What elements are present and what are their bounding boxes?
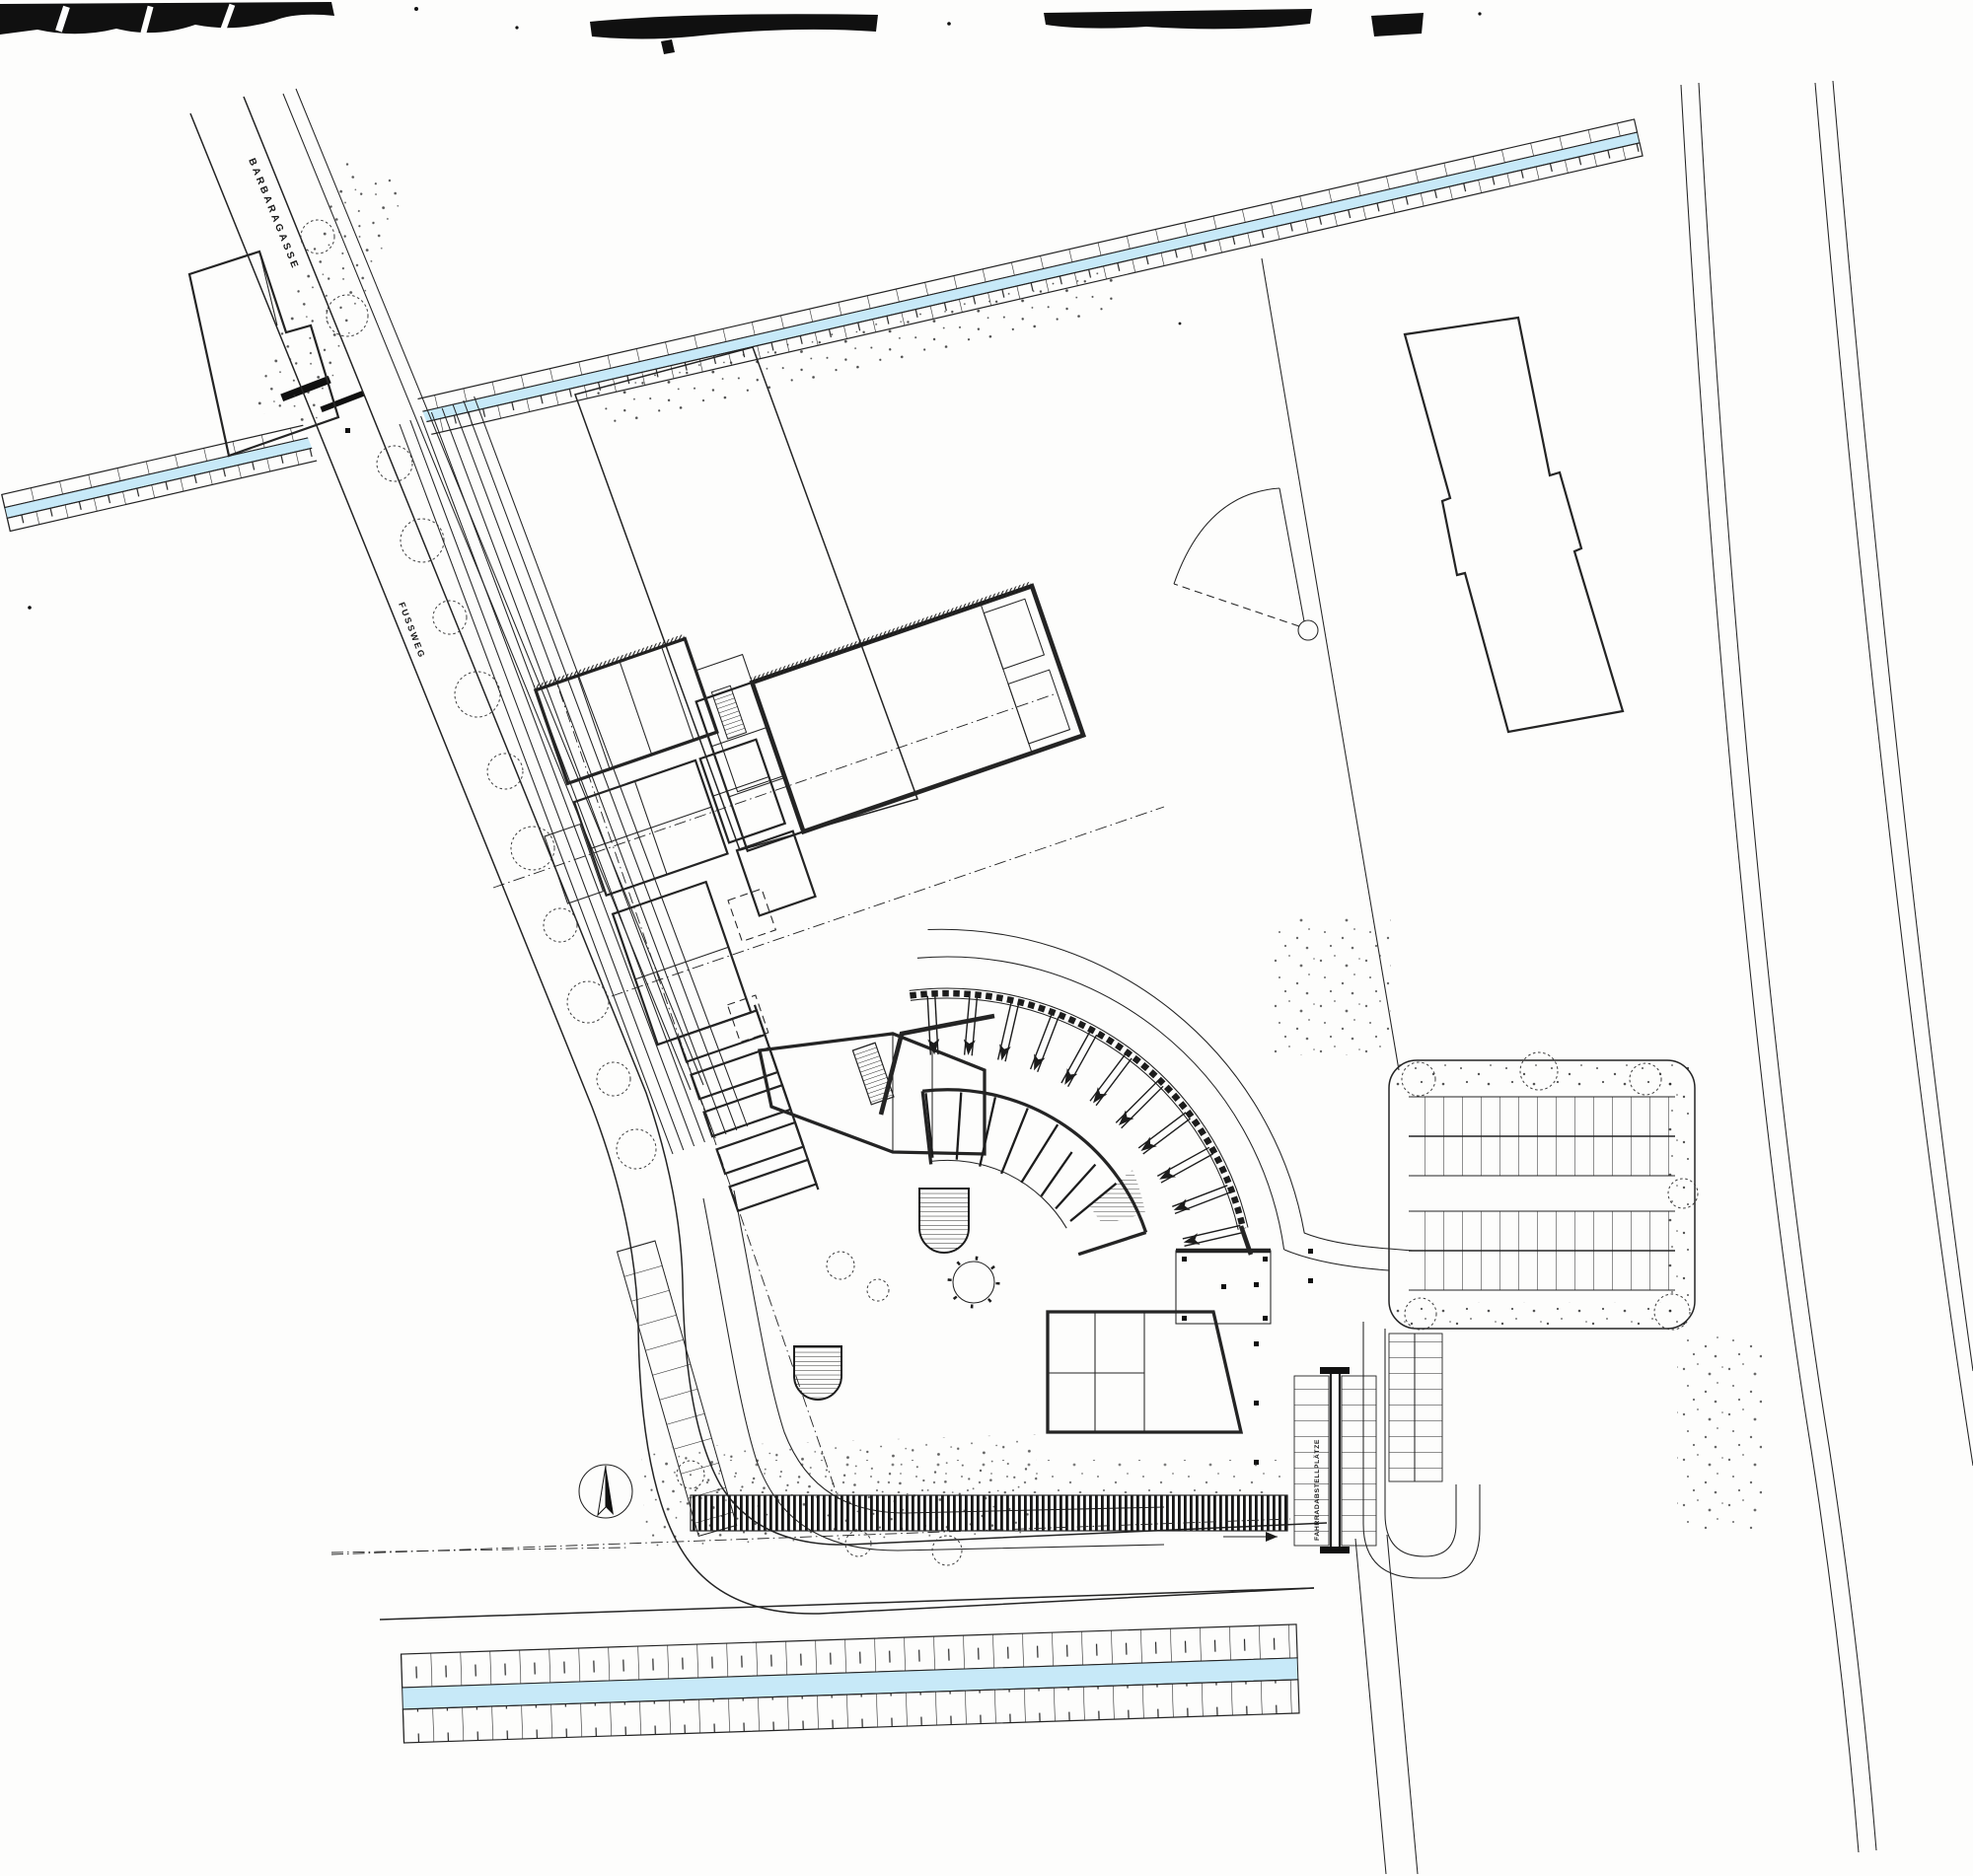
direction-arrow [1266,1532,1278,1542]
canal-north [2,119,1643,532]
parking-stall-rows [1409,1097,1675,1290]
bike-parking-label: FAHRRADABSTELLPLÄTZE [1313,1439,1321,1541]
throwing-sector [1174,488,1318,640]
hall-core [737,831,816,916]
school-complex-wings [534,522,1195,1224]
south-road-edge [380,1588,1314,1620]
footpath-label-fussweg: FUSSWEG [397,601,427,660]
d-stair [919,1189,969,1253]
road-south-of-canal [1355,1535,1418,1874]
courtyard-tree [827,1252,854,1279]
neighbor-building-wall [259,252,277,325]
vegetation [1273,917,1391,1055]
street-label-barbaragasse: BARBARAGASSE [246,157,301,272]
d-stair [794,1346,841,1400]
vegetation [691,1460,1282,1493]
vegetation [1677,1334,1762,1531]
scan-artifact-top-edge [0,2,1482,610]
curved-road-east-outer [1815,81,1973,1466]
scanned-site-plan-page: BARBARAGASSE FUSSWEG [0,0,1973,1876]
curved-road-east-inner [1681,83,1876,1852]
road-centerline [331,1548,627,1552]
north-arrow [579,1465,632,1518]
canal-south [402,1624,1299,1743]
south-east-wing [1048,1312,1241,1432]
round-planter [950,1259,998,1307]
gym-annex [696,683,804,851]
running-track-lanes [400,397,748,1154]
canal-north-water [5,132,1640,518]
parking-access-uturn [1363,1322,1480,1578]
entry-walk-stalls: FAHRRADABSTELLPLÄTZE [1294,1367,1376,1553]
courtyard-tree [867,1279,889,1301]
classroom-block-east [700,740,785,843]
site-plan-drawing: BARBARAGASSE FUSSWEG [0,0,1973,1876]
finger-wing-spine [755,1005,818,1190]
parking-lot-southeast [1389,1052,1698,1330]
building-axis [612,807,1164,996]
apartment-slab-building [1405,318,1623,732]
bridge-post [345,428,350,433]
